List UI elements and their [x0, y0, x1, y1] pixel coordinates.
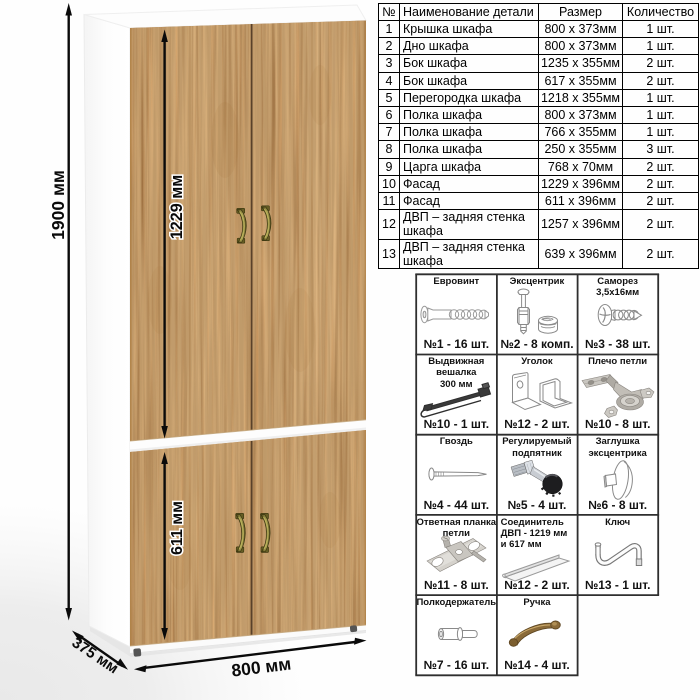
svg-text:1900 мм: 1900 мм	[48, 170, 68, 240]
svg-text:1229 мм: 1229 мм	[168, 175, 186, 239]
svg-text:611 мм: 611 мм	[169, 501, 186, 555]
